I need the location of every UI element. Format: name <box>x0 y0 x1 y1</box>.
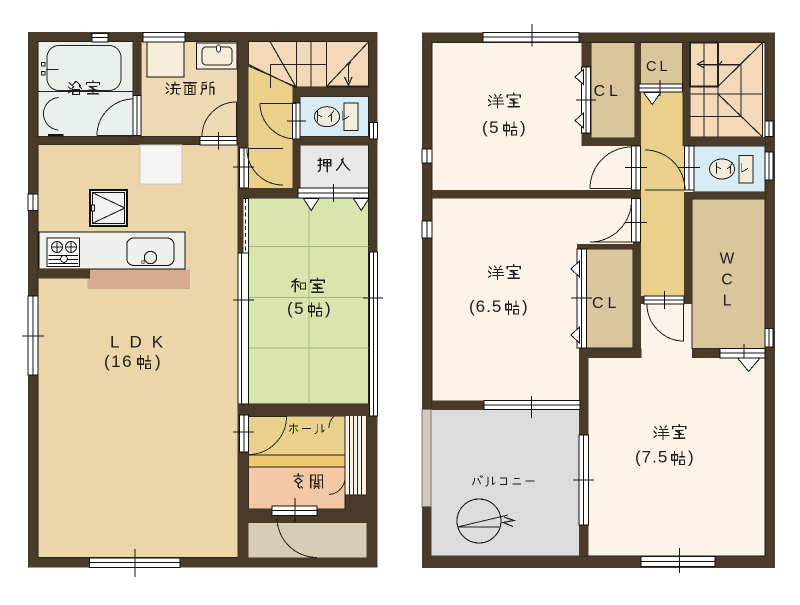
svg-text:C: C <box>721 272 732 289</box>
svg-text:): ) <box>155 352 161 371</box>
svg-text:(5: (5 <box>482 118 500 137</box>
svg-text:CL: CL <box>592 295 620 312</box>
svg-text:LDK: LDK <box>110 333 173 352</box>
svg-text:): ) <box>520 118 526 137</box>
svg-text:): ) <box>325 299 331 318</box>
svg-text:): ) <box>688 448 694 467</box>
svg-text:CL: CL <box>594 83 622 100</box>
svg-text:(6.5: (6.5 <box>469 297 502 316</box>
svg-text:(7.5: (7.5 <box>635 448 668 467</box>
svg-text:L: L <box>723 293 732 310</box>
svg-text:): ) <box>522 297 528 316</box>
svg-text:(16: (16 <box>104 352 133 371</box>
svg-text:(5: (5 <box>287 299 305 318</box>
svg-text:CL: CL <box>646 59 671 75</box>
svg-text:W: W <box>720 251 735 268</box>
